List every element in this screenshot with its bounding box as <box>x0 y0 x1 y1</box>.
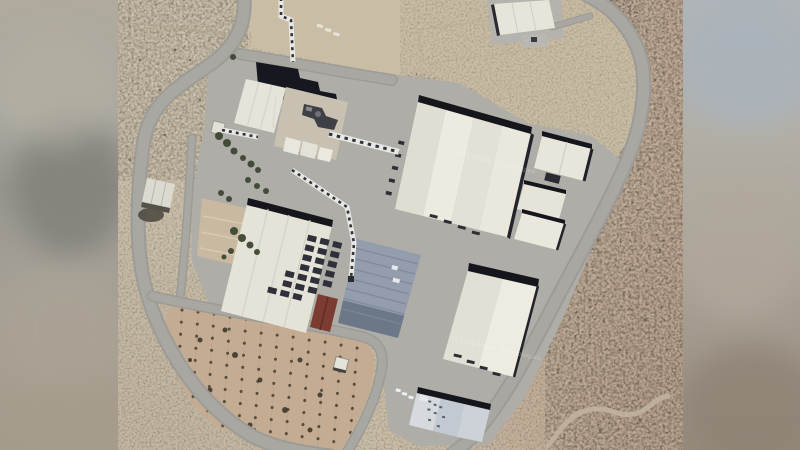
satellite-scene: © 2023 Maxar Technologies © 2023 Maxar T… <box>0 0 800 450</box>
satellite-image-frame: © 2023 Maxar Technologies © 2023 Maxar T… <box>0 0 800 450</box>
right-blur-bar <box>678 0 800 450</box>
satellite-photo: © 2023 Maxar Technologies © 2023 Maxar T… <box>118 0 683 450</box>
